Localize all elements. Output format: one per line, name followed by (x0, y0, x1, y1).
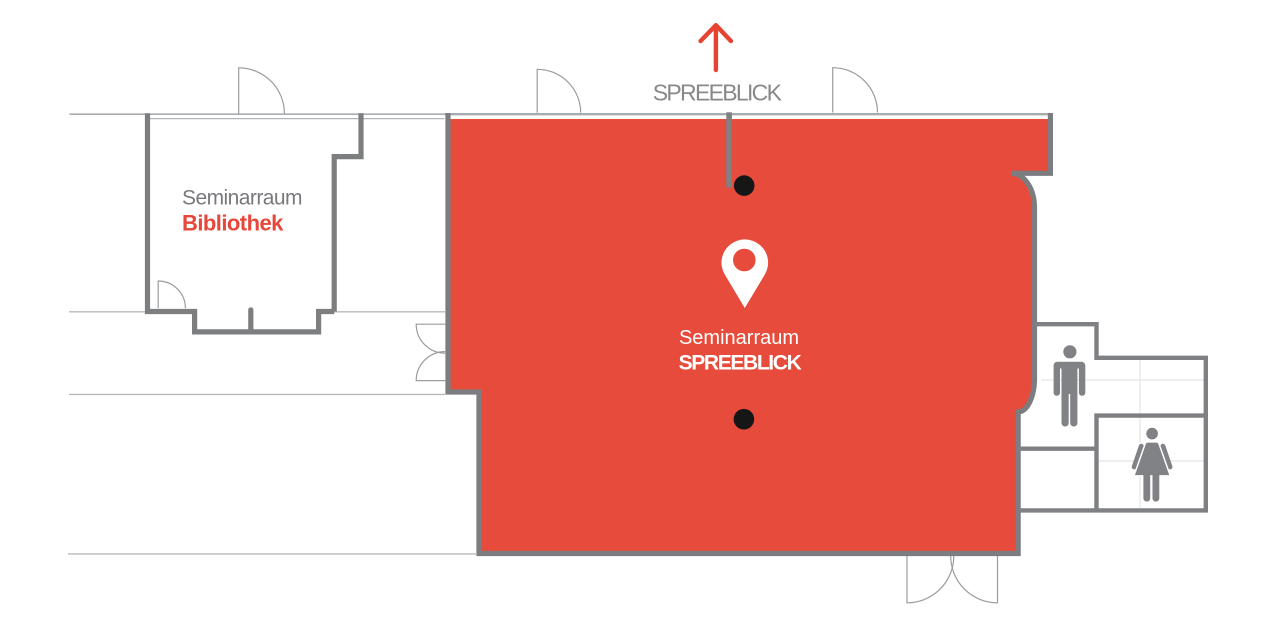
svg-text:SPREEBLICK: SPREEBLICK (653, 79, 783, 105)
svg-text:Seminarraum: Seminarraum (679, 327, 799, 349)
svg-text:SPREEBLICK: SPREEBLICK (679, 352, 802, 375)
svg-text:Bibliothek: Bibliothek (182, 210, 284, 235)
svg-text:Seminarraum: Seminarraum (182, 187, 302, 210)
